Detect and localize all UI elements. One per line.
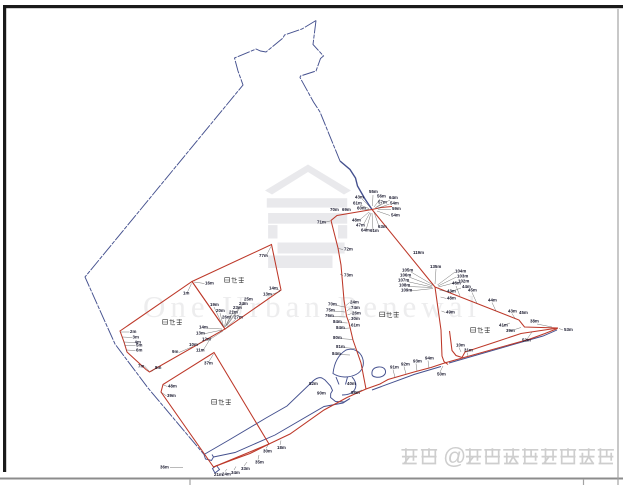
svg-text:26m: 26m <box>222 315 231 320</box>
svg-text:69m: 69m <box>342 207 351 212</box>
svg-text:84m: 84m <box>336 325 345 330</box>
svg-text:73m: 73m <box>344 273 353 278</box>
svg-text:13m: 13m <box>263 292 272 297</box>
svg-text:84m: 84m <box>332 351 341 356</box>
svg-text:43m: 43m <box>355 195 364 200</box>
svg-text:10m: 10m <box>189 342 198 347</box>
svg-text:16m: 16m <box>205 281 214 286</box>
svg-text:72m: 72m <box>344 247 353 252</box>
svg-text:63m: 63m <box>378 224 387 229</box>
svg-text:30m: 30m <box>351 316 360 321</box>
svg-text:24m: 24m <box>222 472 231 477</box>
svg-text:18m: 18m <box>277 445 286 450</box>
svg-text:9m: 9m <box>172 349 178 354</box>
svg-text:61m: 61m <box>351 323 360 328</box>
svg-text:74m: 74m <box>351 305 360 310</box>
svg-text:54m: 54m <box>391 213 400 218</box>
svg-text:109m: 109m <box>401 288 412 293</box>
svg-text:84m: 84m <box>333 319 342 324</box>
svg-text:119m: 119m <box>413 250 424 255</box>
svg-text:38m: 38m <box>530 319 539 324</box>
svg-text:82m: 82m <box>309 381 318 386</box>
svg-text:@: @ <box>443 443 466 469</box>
svg-text:8m: 8m <box>155 365 161 370</box>
svg-text:46m: 46m <box>452 281 461 286</box>
svg-text:88m: 88m <box>351 390 360 395</box>
svg-text:45m: 45m <box>519 310 528 315</box>
svg-text:26m: 26m <box>352 311 361 316</box>
svg-text:64m: 64m <box>361 228 370 233</box>
svg-text:49m: 49m <box>446 310 455 315</box>
svg-text:56m: 56m <box>377 194 386 199</box>
svg-text:31m: 31m <box>464 348 473 353</box>
svg-text:43m: 43m <box>447 289 456 294</box>
svg-text:70m: 70m <box>328 302 337 307</box>
svg-text:81m: 81m <box>336 344 345 349</box>
svg-text:71m: 71m <box>317 220 326 225</box>
svg-text:75m: 75m <box>326 308 335 313</box>
svg-text:135m: 135m <box>430 264 441 269</box>
svg-text:27m: 27m <box>234 315 243 320</box>
svg-text:20m: 20m <box>216 308 225 313</box>
svg-text:34m: 34m <box>231 470 240 475</box>
svg-text:44m: 44m <box>488 298 497 303</box>
svg-text:25m: 25m <box>244 297 253 302</box>
svg-text:One Urban Renewal: One Urban Renewal <box>143 289 481 324</box>
svg-text:43m: 43m <box>508 309 517 314</box>
svg-text:2m: 2m <box>130 329 136 334</box>
svg-text:14m: 14m <box>199 325 208 330</box>
svg-text:80m: 80m <box>333 335 342 340</box>
svg-text:12m: 12m <box>202 337 211 342</box>
svg-text:36m: 36m <box>160 465 169 470</box>
svg-text:33m: 33m <box>241 466 250 471</box>
svg-text:94m: 94m <box>425 356 434 361</box>
svg-text:52m: 52m <box>522 338 531 343</box>
svg-text:70m: 70m <box>330 207 339 212</box>
svg-text:14m: 14m <box>269 286 278 291</box>
svg-text:54m: 54m <box>390 201 399 206</box>
svg-text:60m: 60m <box>357 206 366 211</box>
svg-text:45m: 45m <box>468 288 477 293</box>
svg-text:21m: 21m <box>214 472 223 477</box>
svg-text:19m: 19m <box>210 302 219 307</box>
svg-text:48m: 48m <box>168 384 177 389</box>
svg-text:35m: 35m <box>255 460 264 465</box>
svg-text:64m: 64m <box>389 195 398 200</box>
svg-text:39m: 39m <box>506 328 515 333</box>
svg-text:11m: 11m <box>196 348 205 353</box>
svg-text:6m: 6m <box>136 348 142 353</box>
svg-text:40m: 40m <box>347 381 356 386</box>
svg-text:13m: 13m <box>196 331 205 336</box>
svg-text:92m: 92m <box>401 362 410 367</box>
svg-text:90m: 90m <box>317 391 326 396</box>
svg-text:41m: 41m <box>499 323 508 328</box>
svg-text:37m: 37m <box>204 361 213 366</box>
svg-text:24m: 24m <box>239 301 248 306</box>
svg-text:59m: 59m <box>392 206 401 211</box>
svg-text:39m: 39m <box>167 393 176 398</box>
svg-text:53m: 53m <box>564 327 573 332</box>
svg-text:30m: 30m <box>263 449 272 454</box>
svg-text:48m: 48m <box>447 296 456 301</box>
svg-text:93m: 93m <box>413 359 422 364</box>
svg-text:24m: 24m <box>350 300 359 305</box>
svg-text:1m: 1m <box>183 291 189 296</box>
svg-text:57m: 57m <box>378 200 387 205</box>
svg-text:77m: 77m <box>259 253 268 258</box>
svg-text:50m: 50m <box>437 372 446 377</box>
svg-text:76m: 76m <box>325 313 334 318</box>
svg-text:7m: 7m <box>138 364 144 369</box>
svg-text:91m: 91m <box>390 365 399 370</box>
